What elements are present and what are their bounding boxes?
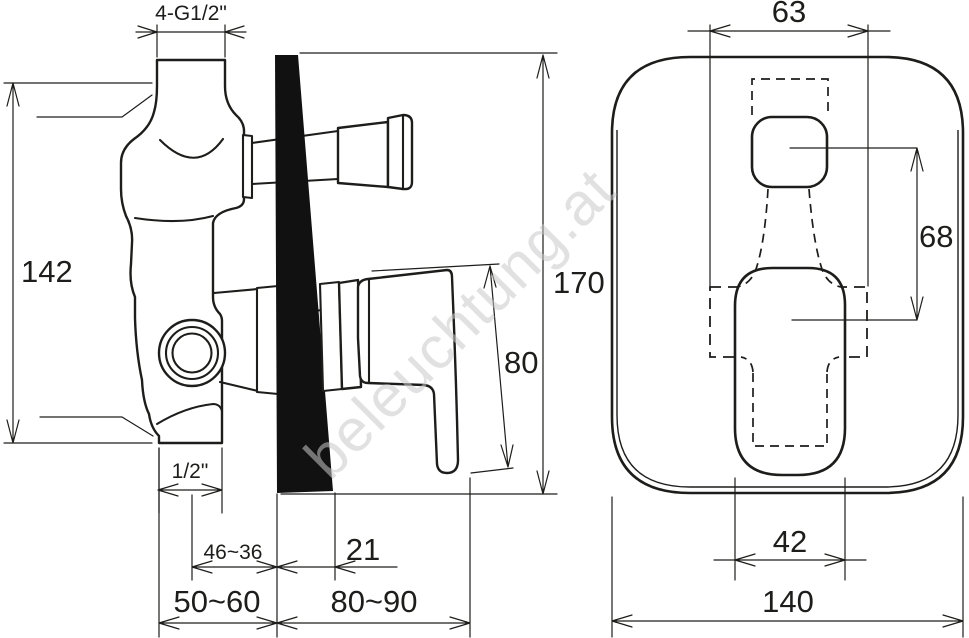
front-view: 63 68 42 140 <box>612 0 963 637</box>
dim-label-front-depth: 80~90 <box>330 584 417 619</box>
dim-plate-width: 140 <box>612 497 963 637</box>
dim-label-lever-length: 80 <box>504 345 538 380</box>
dim-label-depth-adjust: 46~36 <box>204 541 263 564</box>
dim-label-rough-in-depth: 50~60 <box>173 584 260 619</box>
dim-label-wall-thickness: 21 <box>346 532 380 567</box>
dim-label-lever-width: 42 <box>773 524 807 559</box>
lower-flange <box>257 286 278 394</box>
mixer-dimension-drawing: 4-G1/2" 142 1/2" 46~36 21 50~60 80~90 17… <box>0 0 969 638</box>
dim-thread-top: 4-G1/2" <box>136 2 246 57</box>
dim-label-thread-top: 4-G1/2" <box>155 2 227 25</box>
dim-label-box-width: 63 <box>772 0 806 29</box>
dim-label-body-height: 142 <box>21 254 73 289</box>
outlet-boss-outer <box>159 320 225 386</box>
side-view: 4-G1/2" 142 1/2" 46~36 21 50~60 80~90 17… <box>4 2 605 637</box>
dim-thread-bottom: 1/2" <box>158 448 222 513</box>
lever-handle-front <box>735 268 845 475</box>
diverter-knob-front <box>752 117 827 187</box>
technical-drawing-page: 4-G1/2" 142 1/2" 46~36 21 50~60 80~90 17… <box>0 0 969 638</box>
dim-label-plate-width: 140 <box>762 584 814 619</box>
dim-label-total-height: 170 <box>553 265 605 300</box>
dim-label-center-distance: 68 <box>919 219 953 254</box>
dim-depth-adjust-row: 46~36 21 <box>192 493 397 580</box>
diverter-knob-cap <box>388 115 412 189</box>
upper-flange <box>243 135 252 198</box>
diverter-knob <box>338 122 388 187</box>
dim-label-thread-bottom: 1/2" <box>172 460 209 483</box>
